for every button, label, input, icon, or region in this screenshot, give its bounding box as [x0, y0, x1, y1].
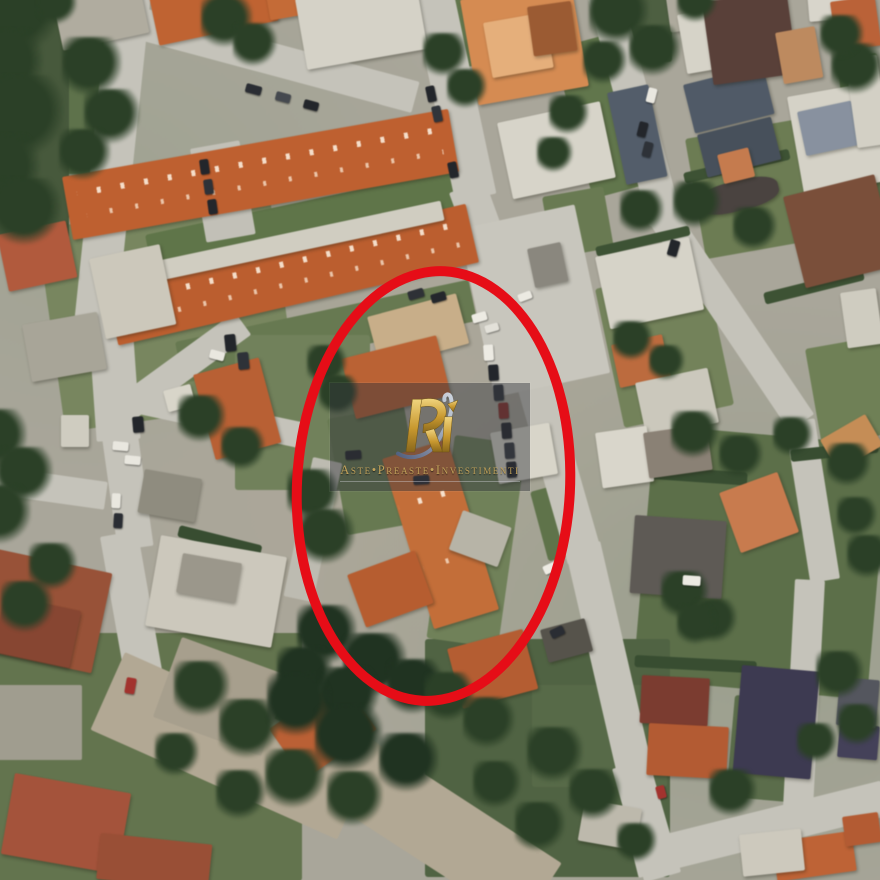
tree-canopy	[515, 802, 565, 852]
watermark-overlay: Aste•Preaste•Investimenti	[330, 383, 530, 491]
building-roof	[639, 675, 709, 726]
tree-canopy	[379, 733, 439, 793]
r-left-stem	[406, 399, 422, 452]
tree-canopy	[265, 749, 325, 809]
building-roof	[61, 415, 89, 447]
tree-canopy	[613, 321, 653, 361]
tree-canopy	[0, 178, 61, 246]
tree-canopy	[463, 697, 515, 749]
building-roof	[739, 829, 805, 877]
building-roof	[775, 26, 823, 84]
brand-logo	[388, 385, 472, 463]
tree-canopy	[847, 535, 880, 579]
ri-monogram-icon	[388, 388, 472, 460]
tree-canopy	[447, 69, 487, 109]
tree-canopy	[59, 129, 111, 181]
tree-canopy	[617, 823, 657, 863]
tree-canopy	[0, 485, 31, 545]
tree-canopy	[719, 435, 763, 479]
tree-canopy	[1, 581, 53, 633]
building-roof	[840, 288, 880, 348]
tree-canopy	[233, 23, 277, 67]
tree-canopy	[549, 95, 589, 135]
car	[112, 441, 129, 451]
tree-canopy	[155, 733, 199, 777]
tree-canopy	[315, 705, 383, 773]
building-roof	[527, 1, 578, 57]
car	[245, 83, 263, 96]
tree-canopy	[733, 207, 777, 251]
tree-canopy	[837, 497, 877, 537]
tree-canopy	[827, 443, 871, 487]
car	[303, 99, 320, 112]
tree-canopy	[620, 190, 664, 234]
tree-canopy	[583, 41, 627, 85]
tree-canopy	[216, 770, 266, 820]
tree-canopy	[537, 137, 573, 173]
car	[275, 91, 292, 104]
r-bowl	[420, 398, 446, 432]
car	[132, 416, 144, 433]
building-roof	[842, 812, 880, 847]
tree-canopy	[677, 605, 717, 645]
tree-canopy	[37, 0, 77, 25]
i-dot	[448, 400, 458, 412]
car	[207, 199, 218, 215]
i-stem	[442, 417, 452, 452]
car	[124, 455, 141, 465]
tree-canopy	[816, 651, 864, 699]
building-roof	[295, 0, 428, 70]
tree-canopy	[797, 723, 837, 763]
car	[199, 159, 210, 175]
tree-canopy	[673, 181, 721, 229]
tree-canopy	[671, 411, 719, 459]
tree-canopy	[773, 417, 813, 457]
car	[645, 87, 657, 104]
road-segment	[0, 685, 82, 760]
tree-canopy	[62, 37, 122, 97]
tree-canopy	[473, 761, 521, 809]
car	[111, 493, 121, 508]
watermark-brand-text: Aste•Preaste•Investimenti	[340, 463, 519, 478]
car	[224, 334, 237, 352]
tree-canopy	[649, 345, 685, 381]
car	[237, 352, 250, 370]
tree-canopy	[709, 769, 757, 817]
satellite-photo: Aste•Preaste•Investimenti	[0, 0, 880, 880]
tree-canopy	[677, 0, 717, 23]
car	[203, 179, 214, 195]
car	[113, 513, 123, 528]
watermark-divider	[340, 481, 520, 482]
tree-canopy	[178, 395, 226, 443]
car	[682, 575, 701, 586]
tree-canopy	[569, 769, 621, 821]
tree-canopy	[838, 704, 880, 746]
tree-canopy	[820, 15, 864, 59]
tree-canopy	[629, 25, 681, 77]
tree-canopy	[221, 427, 265, 471]
tree-canopy	[327, 771, 383, 827]
